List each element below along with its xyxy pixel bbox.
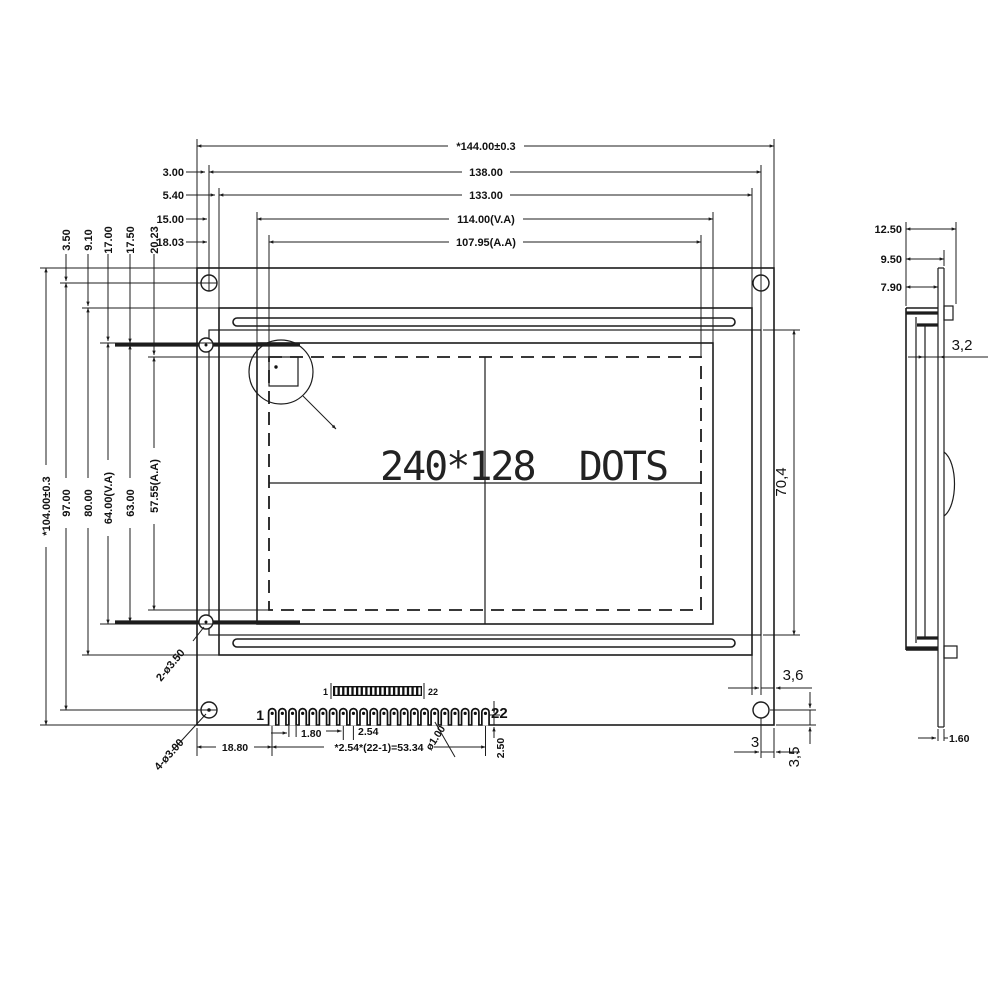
connector-pin [319,709,326,726]
connector-pin [299,709,306,726]
dim-glass-height: 70,4 [773,467,790,496]
connector-pin [350,709,357,726]
connector-pin [421,709,428,726]
connector-pin [472,709,479,726]
dim-side-79: 7.90 [881,282,902,294]
offset-17-00: 17.00 [103,226,115,254]
connector-pin [289,709,296,726]
pixel-detail-callout [249,340,336,429]
connector-pin [269,709,276,726]
connector-pin [370,709,377,726]
connector-pin [462,709,469,726]
dim-width-aa: 107.95(A.A) [456,237,516,249]
offset-3-50: 3.50 [61,229,73,250]
dim-height-total: *104.00±0.3 [41,476,53,535]
connector-pin [309,709,316,726]
connector-area: 1 22 1 22 18.80 *2.54*(22-1)=53.34 1.80 … [197,683,508,758]
dim-hole-bottom: 3,5 [786,747,803,768]
dim-width-holes: 138.00 [469,167,503,179]
connector-pin [390,709,397,726]
label-side-holes: 2-ø3.50 [154,647,188,684]
side-tab-bottom [944,646,957,658]
bezel-bottom-slot [233,639,735,647]
strip-first-label: 1 [323,687,328,697]
dim-width-va: 114.00(V.A) [457,214,515,226]
offset-9-10: 9.10 [83,229,95,250]
bezel-top-slot [233,318,735,326]
top-dimensions: *144.00±0.3 138.00 3.00 133.00 5.40 114.… [156,139,774,357]
dots-label: 240*128 DOTS [380,444,667,490]
dim-height-aa: 57.55(A.A) [149,459,161,513]
dim-pitch: 2.54 [358,726,379,738]
offset-15: 15.00 [156,214,184,226]
side-component-bump [944,452,955,516]
connector-pin [330,709,337,726]
connector-pin [482,709,489,726]
connector-pin [431,709,438,726]
connector-pin [279,709,286,726]
dim-side-95: 9.50 [881,254,902,266]
dim-side-125: 12.50 [874,224,902,236]
connector-pin [360,709,367,726]
front-view: 240*128 DOTS [115,268,774,725]
dim-side-stack: 3,2 [952,337,973,354]
connector-pin [411,709,418,726]
dim-height-holes: 97.00 [61,489,73,517]
pin-row [269,709,489,726]
detail-pixel-square [269,357,298,386]
hole-center-dot [205,621,208,624]
dim-height-63: 63.00 [125,489,137,517]
side-view: 12.50 9.50 7.90 3,2 1.60 [874,222,988,745]
dim-hole-edge: 3 [751,734,759,751]
dim-pitch-total: *2.54*(22-1)=53.34 [334,742,423,754]
connector-pin [401,709,408,726]
connector-pin [451,709,458,726]
detail-dot [274,365,277,368]
dim-height-bezel: 80.00 [83,489,95,517]
connector-pin [340,709,347,726]
lcd-module-outline-drawing: 240*128 DOTS *144.00±0.3 [0,0,1000,1000]
dim-width-bezel: 133.00 [469,190,503,202]
detail-circle [249,340,313,404]
connector-pin [441,709,448,726]
offset-5-4: 5.40 [163,190,184,202]
dim-height-va: 64.00(V.A) [103,472,115,525]
technical-drawing-page: 240*128 DOTS *144.00±0.3 [0,0,1000,1000]
right-dimensions: 70,4 3,6 3 3,5 [728,330,816,767]
offset-17-50: 17.50 [125,226,137,254]
side-hole-leader [193,627,204,641]
hole-center-dot [205,344,208,347]
mounting-hole-bottom-right [753,702,769,718]
connector-pin [380,709,387,726]
pin-first-label: 1 [256,707,264,723]
dim-pad-width: 1.80 [301,728,322,740]
detail-arrow [303,396,336,429]
label-corner-holes: 4-ø3.00 [152,737,186,773]
dim-pin-length: 2.50 [495,738,507,759]
strip-last-label: 22 [428,687,438,697]
dim-edge-gap: 3,6 [783,667,804,684]
offset-3: 3.00 [163,167,184,179]
dim-width-total: *144.00±0.3 [456,141,515,153]
dim-side-pcb: 1.60 [949,733,970,745]
side-tab-top [944,306,953,320]
dim-pin-offset: 18.80 [222,742,248,754]
offset-20-23: 20.23 [149,226,161,254]
